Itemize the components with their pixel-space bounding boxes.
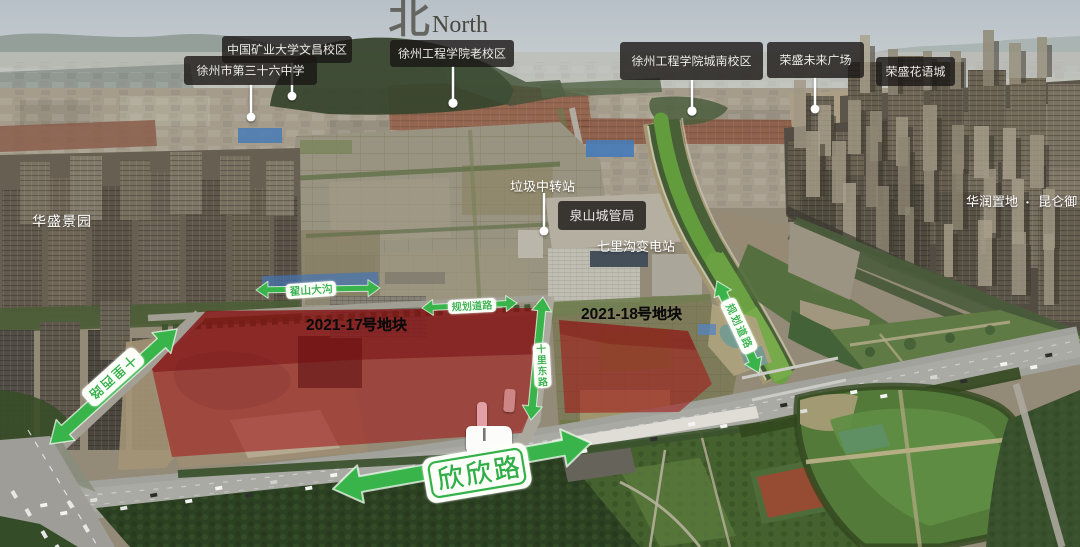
svg-text:2021-17: 2021-17 xyxy=(306,317,363,334)
svg-text:North: North xyxy=(432,12,488,38)
svg-text:2021-18: 2021-18 xyxy=(581,306,638,323)
